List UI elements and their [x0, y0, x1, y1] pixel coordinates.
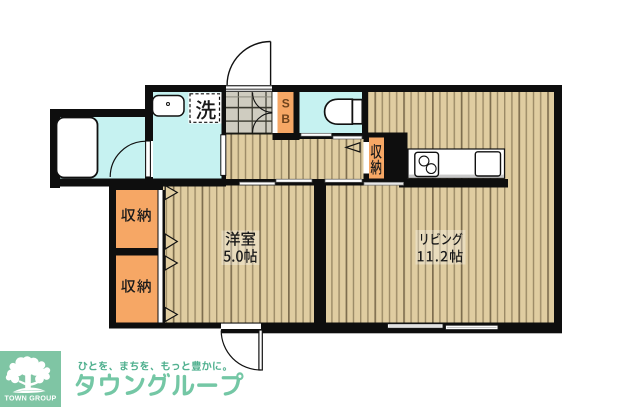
svg-text:S: S	[282, 97, 290, 111]
svg-text:B: B	[281, 112, 290, 126]
svg-text:TOWN GROUP: TOWN GROUP	[4, 394, 56, 402]
